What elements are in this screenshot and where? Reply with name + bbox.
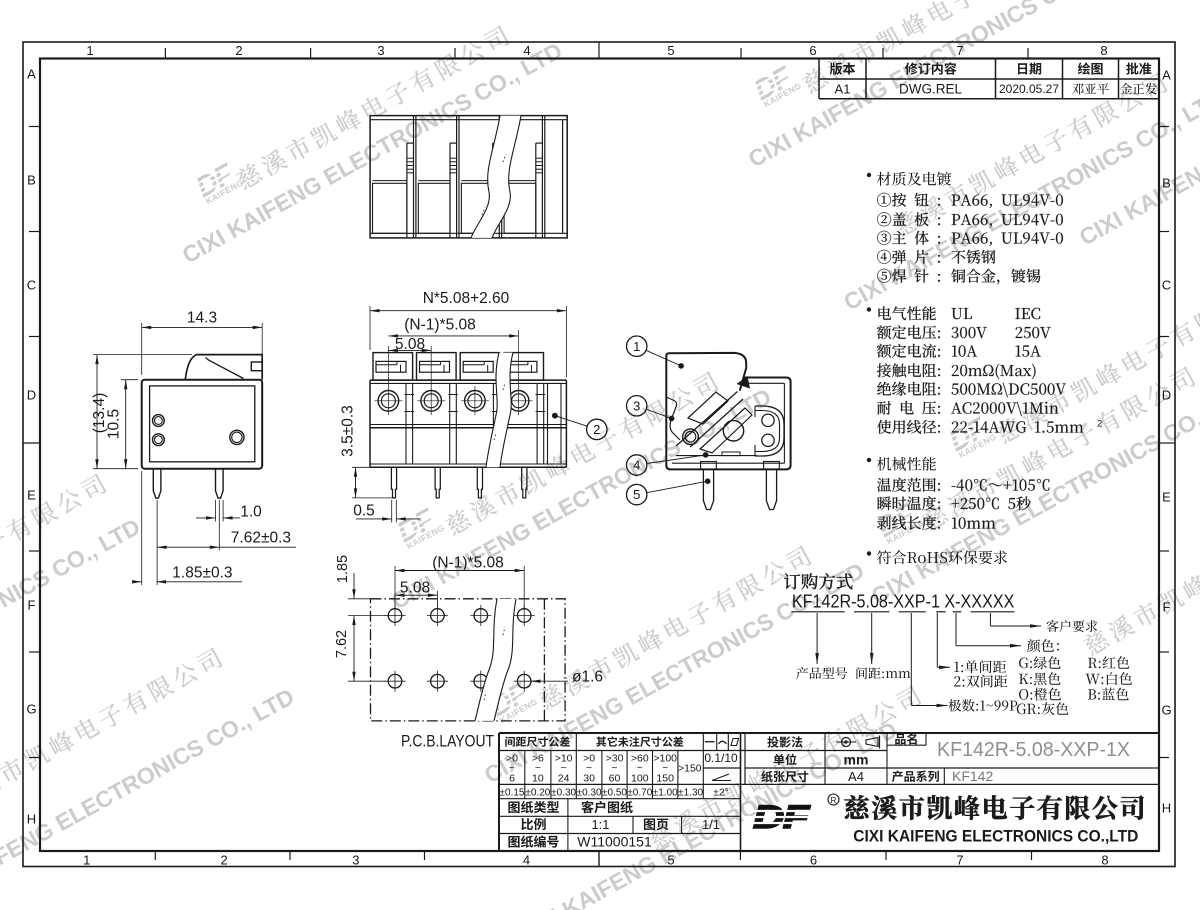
svg-text:KF142: KF142 <box>952 768 993 784</box>
svg-text:3: 3 <box>377 43 384 58</box>
svg-text:±0.50: ±0.50 <box>602 787 627 798</box>
svg-text:G: G <box>1161 703 1171 718</box>
svg-text:H: H <box>27 812 36 827</box>
svg-text:P.C.B.LAYOUT: P.C.B.LAYOUT <box>401 732 494 751</box>
svg-text:4: 4 <box>633 458 640 473</box>
svg-text:±0.30: ±0.30 <box>577 787 602 798</box>
svg-text:N*5.08+2.60: N*5.08+2.60 <box>423 290 510 307</box>
svg-text:ø1.6: ø1.6 <box>572 669 603 686</box>
svg-text:1.85: 1.85 <box>335 555 351 583</box>
svg-text:150: 150 <box>656 773 674 785</box>
svg-text:mm: mm <box>844 752 869 768</box>
svg-text:DWG.REL: DWG.REL <box>899 82 962 97</box>
svg-text:A: A <box>27 67 36 82</box>
svg-text:D: D <box>27 388 36 403</box>
svg-text:60: 60 <box>609 773 621 785</box>
svg-text:2: 2 <box>235 43 242 58</box>
svg-text:3: 3 <box>633 398 640 413</box>
svg-text:C: C <box>27 278 36 293</box>
svg-text:(N-1)*5.08: (N-1)*5.08 <box>432 555 504 572</box>
svg-text:0.1/10: 0.1/10 <box>704 751 738 765</box>
svg-text:8: 8 <box>1100 43 1107 58</box>
svg-text:10: 10 <box>532 773 544 785</box>
svg-text:1:1: 1:1 <box>591 817 609 832</box>
svg-text:W11000151: W11000151 <box>577 834 652 850</box>
svg-text:14.3: 14.3 <box>187 310 217 327</box>
svg-text:7: 7 <box>956 43 963 58</box>
svg-text:1.85±0.3: 1.85±0.3 <box>172 565 232 582</box>
svg-text:5: 5 <box>667 43 674 58</box>
svg-text:5: 5 <box>633 487 640 502</box>
svg-text:2020.05.27: 2020.05.27 <box>999 82 1059 96</box>
svg-text:1/1: 1/1 <box>702 817 720 832</box>
svg-text:A: A <box>1162 68 1171 83</box>
svg-text:A4: A4 <box>848 769 864 784</box>
svg-text:7: 7 <box>956 853 963 868</box>
svg-text:0.5: 0.5 <box>353 503 375 520</box>
svg-text:3.5±0.3: 3.5±0.3 <box>340 405 357 457</box>
svg-text:E: E <box>1162 490 1171 505</box>
svg-text:(13.4): (13.4) <box>91 393 108 434</box>
svg-text:C: C <box>1162 278 1171 293</box>
svg-text:R: R <box>831 796 837 805</box>
svg-text:7.62±0.3: 7.62±0.3 <box>231 530 291 547</box>
svg-text:±0.15: ±0.15 <box>500 787 525 798</box>
svg-text:G: G <box>26 702 36 717</box>
svg-text:±1.00: ±1.00 <box>653 787 678 798</box>
svg-text:1: 1 <box>86 43 93 58</box>
svg-text:±2°: ±2° <box>713 786 729 798</box>
svg-text:B: B <box>27 173 36 188</box>
svg-text:24: 24 <box>558 773 570 785</box>
svg-text:6: 6 <box>810 853 817 868</box>
svg-text:KF142R-5.08-XXP-1 X-XXXXX: KF142R-5.08-XXP-1 X-XXXXX <box>792 592 1015 612</box>
svg-text:4: 4 <box>523 43 530 58</box>
svg-text:D: D <box>1162 388 1171 403</box>
svg-text:3: 3 <box>352 853 359 868</box>
svg-text:KF142R-5.08-XXP-1X: KF142R-5.08-XXP-1X <box>937 739 1130 761</box>
svg-text:>150: >150 <box>678 763 702 775</box>
svg-text:(N-1)*5.08: (N-1)*5.08 <box>404 317 476 334</box>
svg-text:±0.70: ±0.70 <box>627 787 652 798</box>
svg-text:H: H <box>1162 801 1171 816</box>
svg-text:±1.30: ±1.30 <box>678 787 703 798</box>
svg-text:6: 6 <box>809 43 816 58</box>
svg-text:8: 8 <box>1101 853 1108 868</box>
svg-text:7.62: 7.62 <box>334 630 350 658</box>
svg-text:F: F <box>1163 600 1171 615</box>
svg-text:2: 2 <box>220 853 227 868</box>
svg-text:A1: A1 <box>835 82 851 97</box>
svg-text:1.0: 1.0 <box>240 504 262 521</box>
svg-text:4: 4 <box>523 853 530 868</box>
svg-text:5: 5 <box>667 853 674 868</box>
svg-text:1: 1 <box>633 339 640 354</box>
svg-text:E: E <box>27 488 36 503</box>
svg-text:CIXI KAIFENG ELECTRONICS CO.,L: CIXI KAIFENG ELECTRONICS CO.,LTD <box>853 827 1138 846</box>
svg-text:B: B <box>1162 176 1171 191</box>
svg-text:6: 6 <box>509 773 515 785</box>
svg-text:2: 2 <box>1097 419 1102 430</box>
svg-text:30: 30 <box>583 773 595 785</box>
svg-text:±0.30: ±0.30 <box>551 787 576 798</box>
svg-text:±0.20: ±0.20 <box>525 787 550 798</box>
svg-text:2: 2 <box>593 422 600 437</box>
svg-text:F: F <box>28 598 36 613</box>
svg-text:1: 1 <box>83 853 90 868</box>
svg-text:100: 100 <box>631 773 649 785</box>
